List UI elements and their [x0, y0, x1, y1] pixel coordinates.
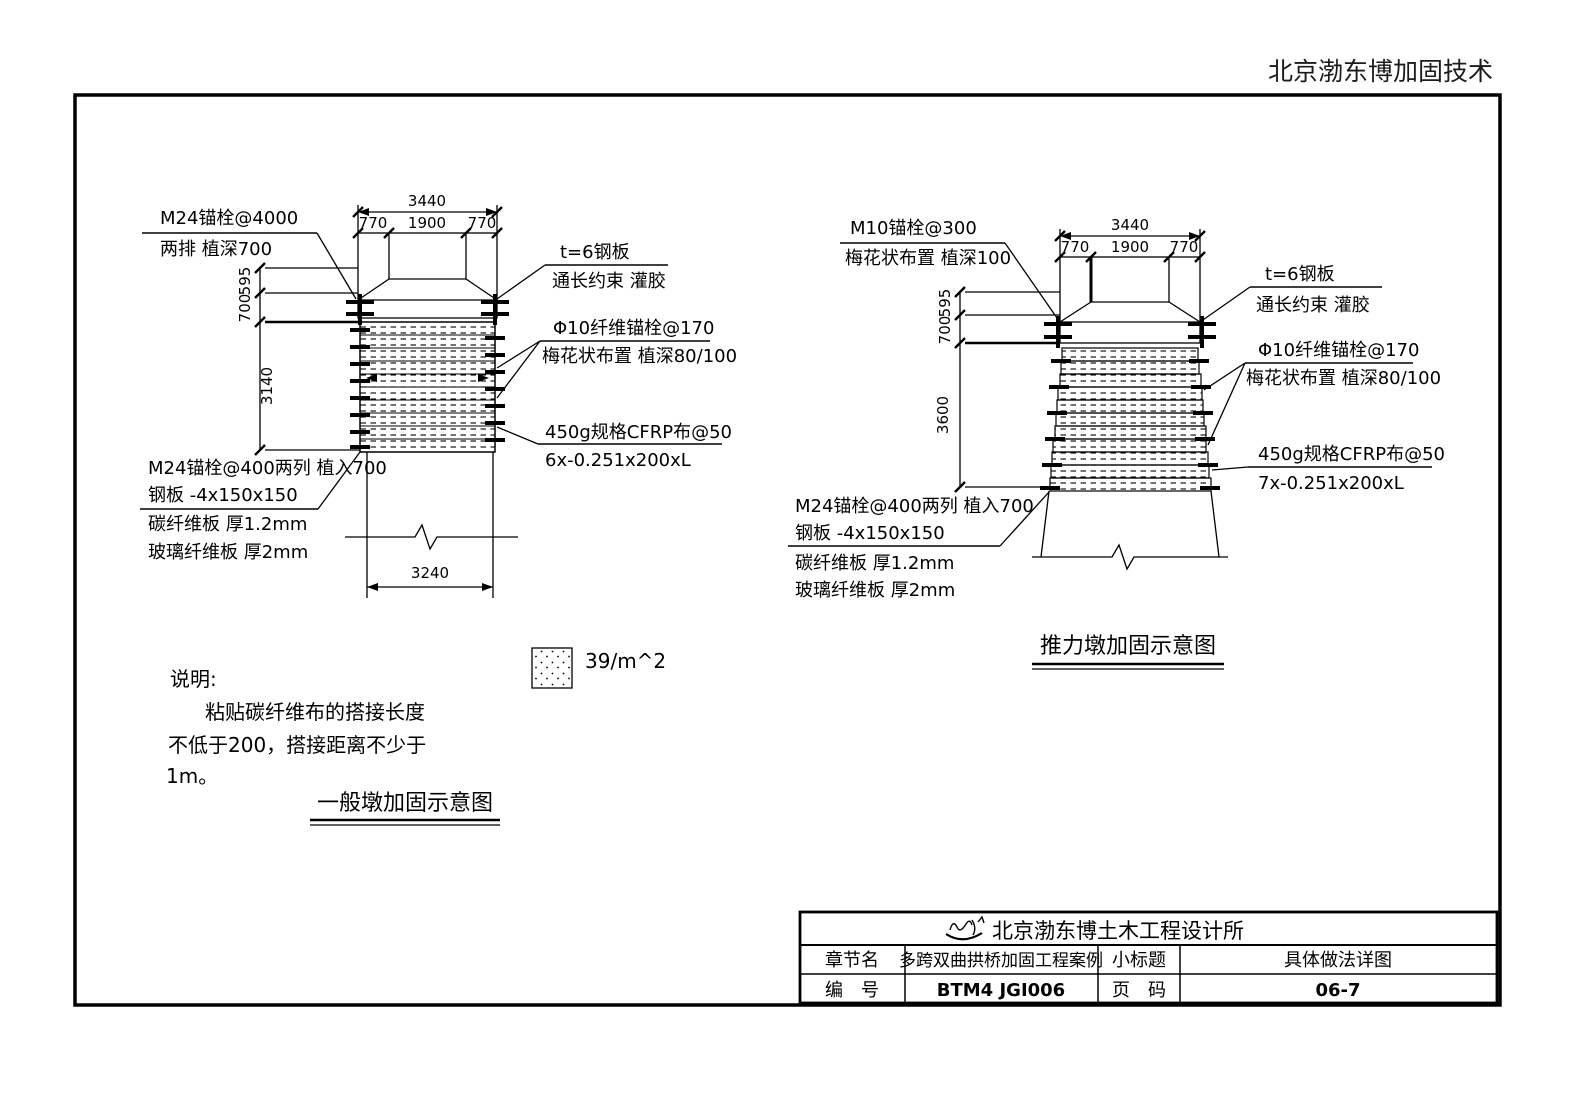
notes-line2: 不低于200，搭接距离不少于	[168, 733, 426, 757]
anchor-bottom-label-1: M24锚栓@400两列 植入700	[148, 458, 387, 479]
dim-right: 770	[1170, 238, 1199, 256]
dim-mid: 1900	[1111, 238, 1149, 256]
page-label: 页 码	[1112, 980, 1166, 1001]
number-label: 编 号	[825, 980, 879, 1001]
number-value: BTM4 JGI006	[937, 980, 1065, 1001]
thrust-pier-caption: 推力墩加固示意图	[1040, 634, 1216, 659]
anchor-bottom-label-2: 钢板 -4x150x150	[148, 485, 298, 506]
anchor-bottom-label-1: M24锚栓@400两列 植入700	[795, 496, 1034, 517]
steel-plate-label-2: 通长约束 灌胶	[552, 271, 666, 292]
dim-v1: 595	[236, 267, 254, 296]
page-value: 06-7	[1315, 980, 1360, 1001]
general-pier-drawing	[140, 205, 722, 598]
company-name: 北京渤东博土木工程设计所	[992, 919, 1244, 943]
dim-bottom: 3240	[411, 564, 449, 582]
brand-header: 北京渤东博加固技术	[1268, 57, 1493, 86]
legend: 39/m^2	[532, 648, 666, 688]
anchor-bottom-label-2: 钢板 -4x150x150	[795, 523, 945, 544]
cfrp-label-1: 450g规格CFRP布@50	[1258, 444, 1445, 465]
steel-plate-label-1: t=6钢板	[560, 242, 630, 263]
steel-plate-label-2: 通长约束 灌胶	[1256, 295, 1370, 316]
chapter-label: 章节名	[825, 950, 879, 971]
fiber-anchor-label-1: Φ10纤维锚栓@170	[1258, 340, 1419, 361]
subtitle-label: 小标题	[1112, 950, 1166, 971]
dim-left: 770	[359, 214, 388, 232]
general-pier-caption: 一般墩加固示意图	[317, 791, 493, 816]
notes-title: 说明:	[170, 667, 217, 691]
notes: 说明: 粘贴碳纤维布的搭接长度 不低于200，搭接距离不少于 1m。	[166, 667, 426, 788]
dim-v2: 700	[936, 316, 954, 345]
anchor-top-label-1: M10锚栓@300	[850, 218, 977, 239]
cf-plate-label: 碳纤维板 厚1.2mm	[795, 553, 954, 574]
title-block: 北京渤东博土木工程设计所 章节名 多跨双曲拱桥加固工程案例 小标题 具体做法详图…	[800, 912, 1497, 1003]
dim-total-top: 3440	[408, 192, 446, 210]
signature-logo	[946, 917, 984, 939]
anchor-top-label-2: 两排 植深700	[160, 239, 272, 260]
dim-left: 770	[1061, 238, 1090, 256]
dim-v1: 595	[936, 289, 954, 318]
dim-v2: 700	[236, 294, 254, 323]
dim-right: 770	[468, 214, 497, 232]
notes-line3: 1m。	[166, 764, 218, 788]
legend-label: 39/m^2	[585, 649, 666, 673]
dim-v3: 3140	[258, 367, 276, 405]
cf-plate-label: 碳纤维板 厚1.2mm	[148, 514, 307, 535]
subtitle-value: 具体做法详图	[1284, 950, 1392, 971]
gf-plate-label: 玻璃纤维板 厚2mm	[795, 580, 955, 601]
notes-line1: 粘贴碳纤维布的搭接长度	[205, 700, 425, 724]
dot-hatch-swatch	[532, 648, 572, 688]
anchor-top-label-2: 梅花状布置 植深100	[845, 248, 1011, 269]
fiber-anchor-label-1: Φ10纤维锚栓@170	[553, 318, 714, 339]
thrust-pier-drawing	[788, 229, 1432, 569]
cfrp-label-1: 450g规格CFRP布@50	[545, 422, 732, 443]
cfrp-label-2: 7x-0.251x200xL	[1258, 473, 1404, 494]
gf-plate-label: 玻璃纤维板 厚2mm	[148, 542, 308, 563]
cfrp-label-2: 6x-0.251x200xL	[545, 450, 691, 471]
fiber-anchor-label-2: 梅花状布置 植深80/100	[542, 346, 737, 367]
fiber-anchor-label-2: 梅花状布置 植深80/100	[1246, 368, 1441, 389]
steel-plate-label-1: t=6钢板	[1265, 264, 1335, 285]
dim-total-top: 3440	[1111, 216, 1149, 234]
chapter-value: 多跨双曲拱桥加固工程案例	[899, 951, 1103, 971]
dim-mid: 1900	[408, 214, 446, 232]
drawing-sheet: 北京渤东博加固技术	[0, 0, 1571, 1098]
dim-v3: 3600	[934, 396, 952, 434]
anchor-top-label-1: M24锚栓@4000	[160, 208, 298, 229]
